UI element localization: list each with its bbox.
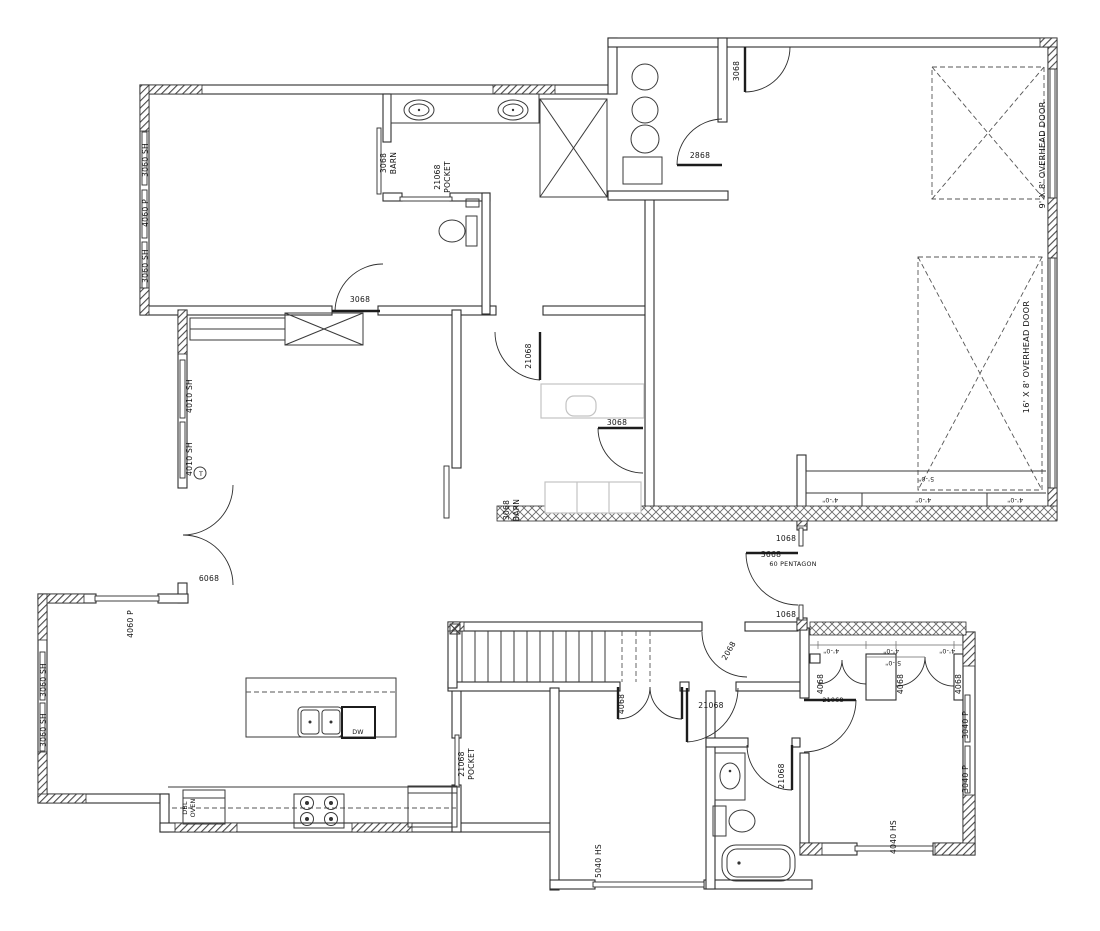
label-3060-sh: 3060 SH: [141, 249, 150, 283]
toilet-icon: [729, 810, 755, 832]
label-dbl: DBL: [182, 801, 189, 815]
label-1068: 1068: [776, 534, 796, 543]
refrigerator: [408, 786, 457, 827]
label-3068: 3068: [607, 418, 627, 427]
label-4-0-: 4'-0": [1007, 496, 1023, 503]
staircase: [450, 624, 650, 682]
label-2868: 2868: [690, 151, 710, 160]
label-21068: 21068: [822, 697, 843, 704]
media-console: [190, 318, 285, 340]
label-4068: 4068: [816, 674, 825, 694]
label-1068: 1068: [776, 610, 796, 619]
label-3068: 3068: [350, 295, 370, 304]
label-21068: 21068: [777, 763, 786, 788]
door-arc-bedroom-top-left: [335, 264, 383, 312]
patio-double-door-upper: [183, 485, 233, 535]
label-4040-hs: 4040 HS: [889, 820, 898, 854]
toilet-icon: [439, 216, 477, 246]
door-arc-mud-north: [495, 332, 540, 380]
label-5040-hs: 5040 HS: [594, 844, 603, 878]
label-4-0-: 4'-0": [883, 647, 899, 654]
label-t: T: [198, 471, 203, 478]
label-21068: 21068: [433, 164, 442, 189]
pocket-door-wc: [400, 197, 452, 201]
closet-door-b2: [925, 657, 954, 686]
label-4068: 4068: [617, 694, 626, 714]
label-3060-sh: 3060 SH: [141, 143, 150, 177]
label-60-pentagon: 60 PENTAGON: [769, 561, 816, 568]
label-2068: 2068: [720, 640, 738, 662]
windows: [40, 69, 1055, 887]
shower: [540, 99, 607, 197]
door-arc-garage-north: [745, 47, 790, 92]
label-21068: 21068: [524, 343, 533, 368]
label-4060-p: 4060 P: [141, 199, 150, 227]
label-4-0-: 4'-0": [915, 496, 931, 503]
double-door-right-leaf: [650, 687, 682, 719]
mud-bench: [545, 482, 641, 513]
overhead-door-16x8-panel: [1050, 258, 1055, 488]
floor-plan-drawing: 3060 SH4060 P3060 SH3068BARN21068POCKET3…: [0, 0, 1100, 931]
door-arc-bedroom2-entry: [804, 700, 856, 752]
label-pocket: POCKET: [467, 748, 476, 780]
label-3068: 3068: [379, 153, 388, 173]
label-dw: DW: [352, 729, 364, 736]
label-4-0-: 4'-0": [939, 647, 955, 654]
label-oven: OVEN: [190, 799, 197, 818]
label-3668: 3668: [761, 550, 781, 559]
label-3040-p: 3040 P: [961, 765, 970, 793]
kitchen-island: [246, 678, 396, 738]
label-3060-sh: 3060 SH: [39, 663, 48, 697]
fireplace: [285, 313, 363, 345]
laundry-fixtures: [623, 64, 662, 184]
closet-door-a2: [842, 660, 866, 684]
label-6068: 6068: [199, 574, 219, 583]
fixtures: [168, 64, 1046, 881]
desk: [541, 384, 644, 418]
label-4010-sh: 4010 SH: [185, 379, 194, 413]
sink-icon: [720, 763, 740, 789]
label-pocket: POCKET: [443, 161, 452, 193]
island-sink: [298, 707, 342, 737]
label-barn: BARN: [512, 499, 521, 521]
overhead-door-9x8-swing: [932, 67, 1044, 199]
label-3068: 3068: [732, 61, 741, 81]
label-4068: 4068: [896, 674, 905, 694]
label-21068: 21068: [457, 751, 466, 776]
label-9-x-8-overhead-door: 9' X 8' OVERHEAD DOOR: [1037, 101, 1047, 208]
label-4010-sh: 4010 SH: [185, 442, 194, 476]
overhead-door-9x8-panel: [1050, 69, 1055, 198]
vanity-counter: [391, 94, 539, 123]
label-4-0-: 4'-0": [823, 647, 839, 654]
label-3068: 3068: [502, 500, 511, 520]
bath-vanity: [715, 753, 745, 800]
label-4060-p: 4060 P: [126, 610, 135, 638]
label-5-0-: 5'-0": [918, 475, 934, 482]
text-labels: 3060 SH4060 P3060 SH3068BARN21068POCKET3…: [39, 61, 1047, 878]
label-4068: 4068: [954, 674, 963, 694]
label-barn: BARN: [389, 152, 398, 174]
label-4-0-: 4'-0": [822, 496, 838, 503]
kitchen-counter: [168, 786, 460, 828]
label-3040-p: 3040 P: [961, 711, 970, 739]
floor-plan-canvas: 3060 SH4060 P3060 SH3068BARN21068POCKET3…: [0, 0, 1100, 931]
door-arc-hall: [598, 428, 643, 473]
label-5-0-: 5'-0": [885, 659, 901, 666]
barn-door-slab-mud: [444, 466, 449, 518]
label-3060-sh: 3060 SH: [39, 713, 48, 747]
label-16-x-8-overhead-door: 16' X 8' OVERHEAD DOOR: [1021, 301, 1031, 414]
label-21068: 21068: [698, 701, 723, 710]
bathtub: [722, 845, 795, 881]
